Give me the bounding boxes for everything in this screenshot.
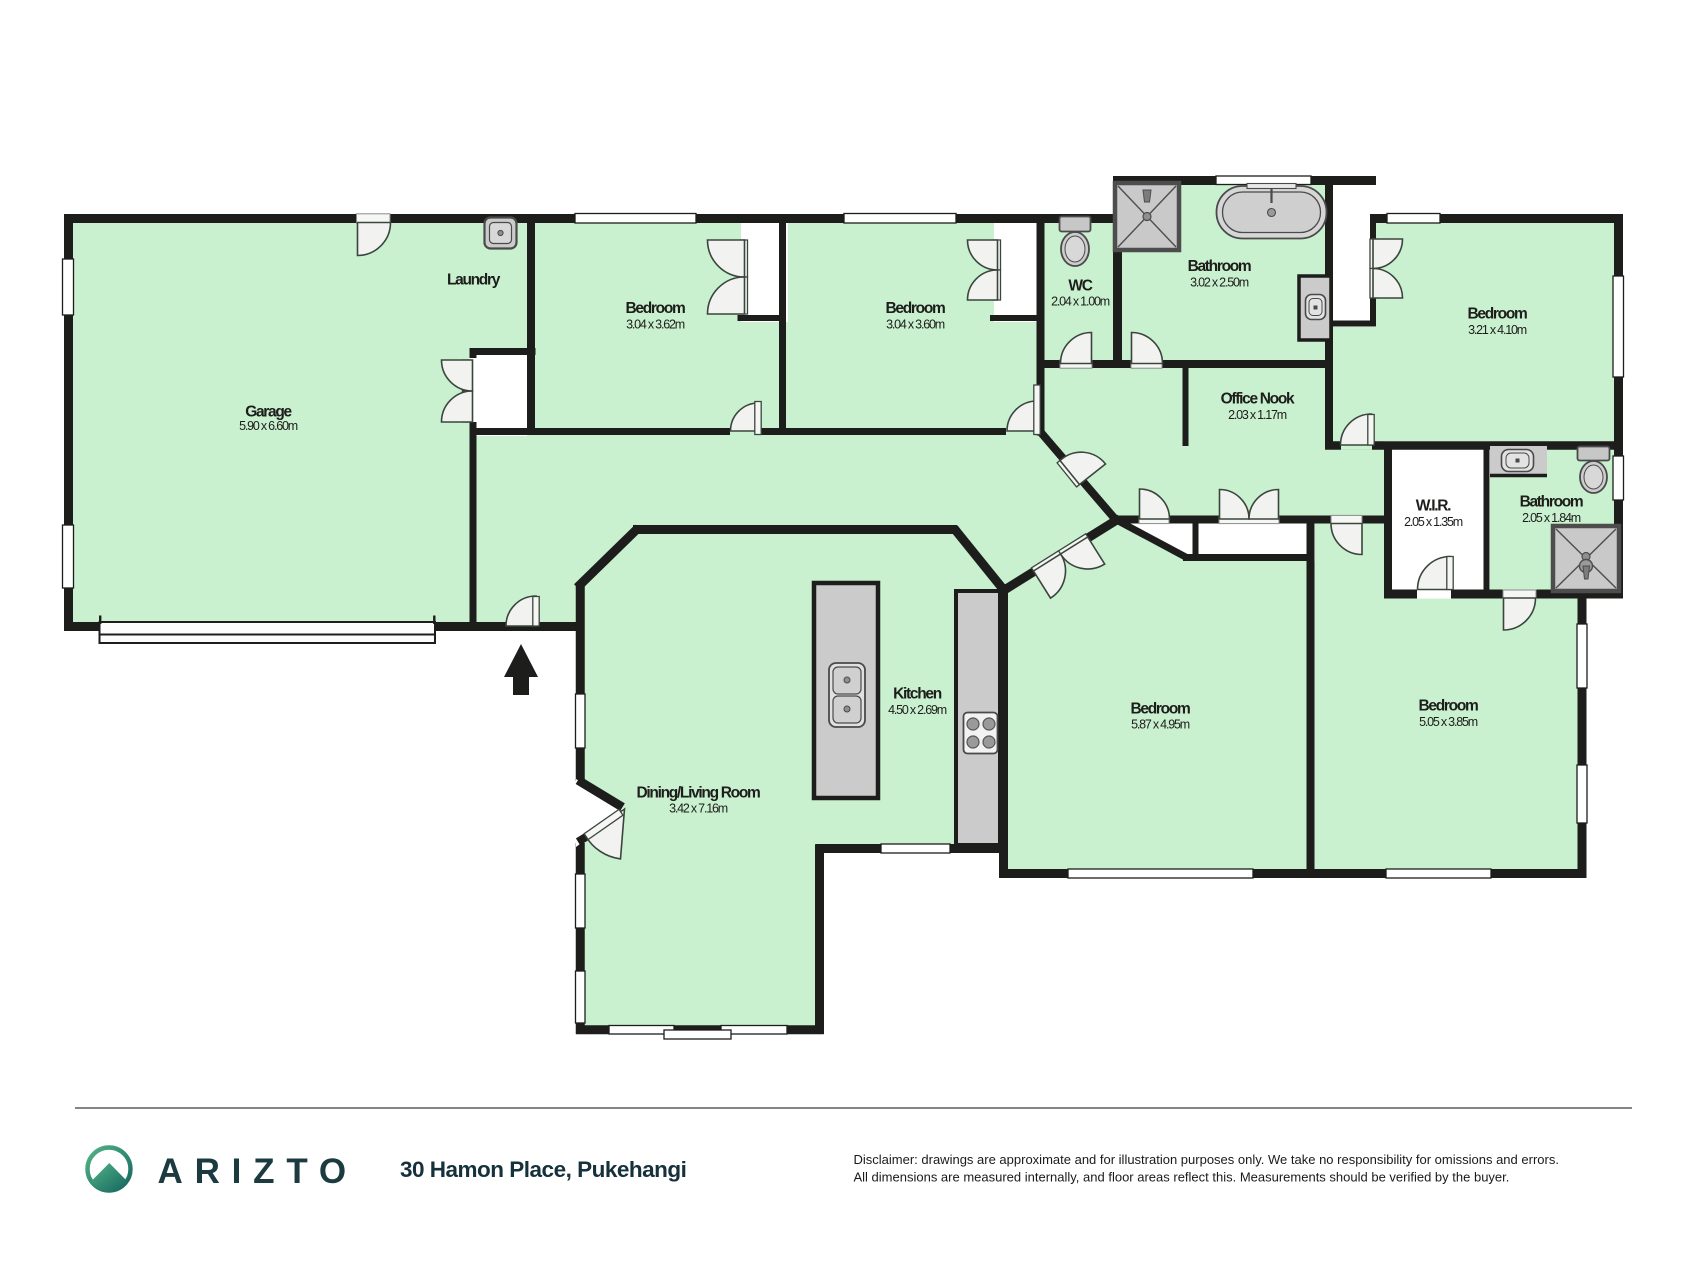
svg-text:Bedroom: Bedroom — [1419, 698, 1478, 715]
svg-text:4.50 x 2.69m: 4.50 x 2.69m — [888, 703, 947, 717]
svg-text:3.04 x 3.62m: 3.04 x 3.62m — [626, 318, 685, 332]
svg-text:Bedroom: Bedroom — [626, 300, 685, 317]
svg-text:Bathroom: Bathroom — [1520, 494, 1583, 511]
svg-text:W.I.R.: W.I.R. — [1416, 498, 1451, 515]
svg-text:2.05 x 1.84m: 2.05 x 1.84m — [1522, 511, 1581, 525]
svg-text:Kitchen: Kitchen — [893, 686, 942, 703]
svg-text:WC: WC — [1068, 278, 1092, 295]
svg-text:5.87 x 4.95m: 5.87 x 4.95m — [1131, 718, 1190, 732]
svg-text:5.90 x 6.60m: 5.90 x 6.60m — [239, 419, 298, 433]
svg-text:Bathroom: Bathroom — [1188, 258, 1251, 275]
svg-text:3.02 x 2.50m: 3.02 x 2.50m — [1190, 276, 1249, 290]
svg-text:Laundry: Laundry — [447, 272, 501, 289]
svg-text:Garage: Garage — [245, 404, 292, 421]
svg-text:30 Hamon Place, Pukehangi: 30 Hamon Place, Pukehangi — [400, 1157, 686, 1182]
svg-text:3.04 x 3.60m: 3.04 x 3.60m — [886, 318, 945, 332]
svg-text:Bedroom: Bedroom — [1131, 701, 1190, 718]
svg-text:All dimensions are measured in: All dimensions are measured internally, … — [854, 1170, 1510, 1185]
svg-text:Dining/Living Room: Dining/Living Room — [637, 785, 760, 802]
svg-text:ARIZTO: ARIZTO — [158, 1152, 358, 1191]
svg-text:Bedroom: Bedroom — [1468, 306, 1527, 323]
svg-text:Disclaimer: drawings are appro: Disclaimer: drawings are approximate and… — [854, 1152, 1559, 1167]
svg-text:Bedroom: Bedroom — [886, 300, 945, 317]
svg-text:3.21 x 4.10m: 3.21 x 4.10m — [1468, 323, 1527, 337]
svg-text:Office Nook: Office Nook — [1221, 391, 1295, 408]
svg-text:2.05 x 1.35m: 2.05 x 1.35m — [1404, 515, 1463, 529]
svg-text:3.42 x 7.16m: 3.42 x 7.16m — [669, 802, 728, 816]
svg-text:2.03 x 1.17m: 2.03 x 1.17m — [1228, 408, 1287, 422]
svg-text:5.05 x 3.85m: 5.05 x 3.85m — [1419, 715, 1478, 729]
svg-text:2.04 x 1.00m: 2.04 x 1.00m — [1051, 295, 1110, 309]
